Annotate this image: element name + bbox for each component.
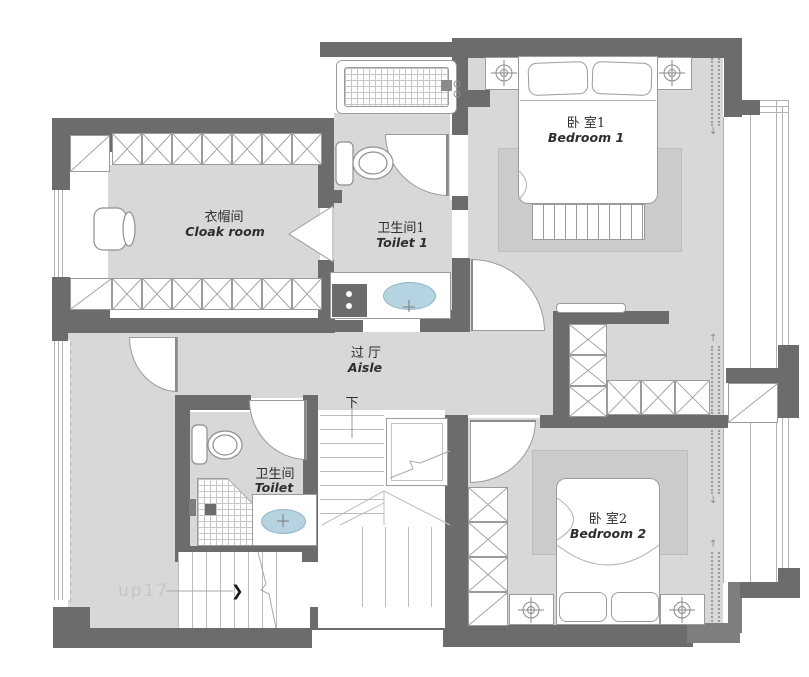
wardrobe-cell [569, 386, 607, 417]
nightstand [660, 594, 705, 625]
window-glazing [54, 190, 55, 277]
wall [175, 395, 251, 410]
bedroom-1-label-zh: 卧 室1 [567, 112, 605, 131]
wall [553, 311, 570, 417]
stair-up-label: up17 [118, 581, 169, 601]
wardrobe-cell [641, 380, 675, 415]
pillow [559, 592, 607, 622]
wardrobe-cell [202, 133, 232, 165]
bedroom-2-label-en: Bedroom 2 [570, 526, 646, 541]
down-label: 下 [345, 392, 358, 411]
toilet-1-sink [383, 282, 436, 310]
wardrobe-cell [172, 278, 202, 310]
wall [88, 628, 312, 648]
tv [556, 303, 626, 313]
wall [98, 118, 332, 133]
balcony-glazing [756, 112, 789, 113]
curtain [711, 430, 720, 494]
wardrobe-cell [70, 278, 112, 310]
curtain-arrow-down-icon: ↓ [709, 127, 717, 137]
aisle-floor-extension [445, 332, 553, 415]
cabinet-knob [346, 303, 352, 309]
wardrobe-cell [262, 133, 292, 165]
wardrobe-cell [607, 380, 641, 415]
wall [740, 582, 800, 598]
wardrobe-cell [112, 278, 142, 310]
wall [726, 368, 778, 383]
balcony-edge-line [750, 115, 751, 582]
wardrobe-cell [262, 278, 292, 310]
window-glazing [58, 340, 59, 600]
toilet-sink [261, 509, 306, 534]
wall [52, 118, 70, 180]
toilet-1-door-leaf [446, 134, 448, 196]
wall [742, 100, 760, 115]
closet-corridor-floor-patch [669, 311, 723, 324]
nightstand [509, 594, 554, 625]
aisle-label-en: Aisle [348, 360, 382, 375]
balcony-glazing [788, 100, 789, 583]
window-glazing [62, 190, 63, 277]
toilet-door-leaf [304, 400, 306, 460]
floor-plan: ↓ up17 ❯ ↓ ↑ ↑ [0, 0, 809, 677]
bedroom-2-door-leaf [470, 420, 536, 422]
shower-valve-icon [189, 499, 196, 516]
cabinet-knob [346, 291, 352, 297]
bedroom-1-label-en: Bedroom 1 [548, 130, 624, 145]
wall [452, 38, 742, 58]
window-sill-dashed-line [70, 342, 71, 604]
bed-bench [532, 204, 645, 240]
wall [52, 333, 68, 341]
wardrobe-cell [202, 278, 232, 310]
toilet-label-en: Toilet [255, 480, 294, 495]
wall [320, 42, 467, 57]
wardrobe-cell [142, 278, 172, 310]
window-glazing [58, 190, 59, 277]
balcony-glazing [756, 100, 789, 101]
wall [443, 625, 693, 647]
pillow [591, 61, 652, 96]
stair-direction-arrow-icon: ❯ [231, 582, 244, 600]
toilet-1-vanity-cabinet [332, 284, 367, 317]
cloak-room-label-zh: 衣帽间 [204, 206, 243, 225]
toilet-1-label-zh: 卫生间1 [377, 217, 424, 236]
wardrobe-cell [569, 324, 607, 355]
wardrobe-cell [569, 355, 607, 386]
wall [778, 568, 800, 583]
curtain [711, 552, 720, 622]
wardrobe-cell [468, 487, 508, 522]
pillow [527, 61, 588, 96]
cloak-room-label-en: Cloak room [185, 224, 265, 239]
bedroom-1-door-leaf [471, 259, 473, 331]
nightstand [653, 57, 692, 90]
wall [452, 196, 468, 210]
wardrobe-cell [468, 522, 508, 557]
wardrobe-cell [292, 133, 322, 165]
balcony-glazing [776, 100, 777, 583]
window-glazing [62, 340, 63, 600]
wardrobe-cell [292, 278, 322, 310]
wardrobe-cell [172, 133, 202, 165]
pillow [611, 592, 659, 622]
wall [52, 318, 335, 333]
wall [452, 90, 490, 107]
curtain-arrow-up-icon: ↑ [709, 334, 717, 344]
hall-door-leaf [175, 337, 177, 392]
curtain [711, 346, 720, 414]
wardrobe-cell [142, 133, 172, 165]
wardrobe-cell [675, 380, 710, 415]
wall [778, 345, 799, 418]
curtain-arrow-down-icon: ↓ [709, 496, 717, 506]
stairs-upper-flight [320, 415, 384, 525]
wall [53, 607, 90, 648]
curtain [711, 58, 720, 126]
wardrobe-cell [468, 592, 508, 626]
wall [724, 55, 742, 117]
wall [318, 190, 342, 203]
wardrobe-cell [70, 135, 110, 172]
wall [303, 320, 363, 332]
bathtub-basin [344, 67, 449, 107]
aisle-label-zh: 过 厅 [351, 342, 381, 361]
shower-drain [205, 504, 216, 515]
stairs-lower-flight [178, 552, 278, 628]
wardrobe-cell [112, 133, 142, 165]
cabinet-box [728, 383, 778, 423]
wardrobe-cell [468, 557, 508, 592]
stair-void-inner [391, 423, 443, 481]
wardrobe-cell [232, 278, 262, 310]
bedroom-2-label-zh: 卧 室2 [589, 508, 627, 527]
curtain-arrow-up-icon: ↑ [709, 540, 717, 550]
window-glazing [54, 340, 55, 600]
balcony-glazing [756, 106, 789, 107]
stairs-mid-flight [362, 527, 445, 607]
balcony-window-inner-line [723, 117, 724, 583]
wall [445, 415, 468, 628]
wall [175, 395, 190, 562]
wall [52, 180, 70, 190]
blanket-edge-line [520, 100, 656, 101]
toilet-1-label-en: Toilet 1 [376, 235, 428, 250]
wardrobe-cell [232, 133, 262, 165]
